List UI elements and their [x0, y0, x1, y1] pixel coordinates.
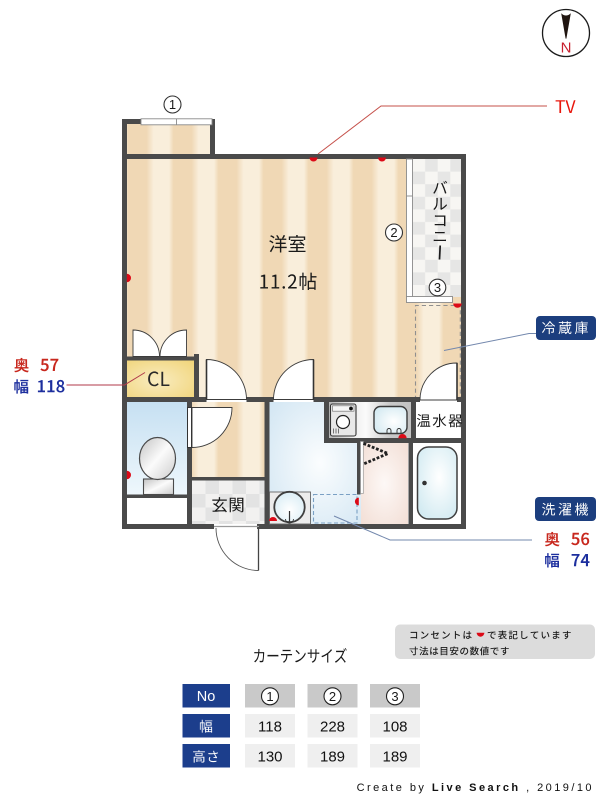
svg-text:2: 2 [390, 225, 397, 240]
svg-text:Create by Live Search , 2019/1: Create by Live Search , 2019/10 [357, 782, 594, 794]
svg-text:189: 189 [320, 749, 345, 766]
svg-text:130: 130 [257, 749, 282, 766]
svg-text:3: 3 [434, 280, 441, 295]
svg-text:189: 189 [382, 749, 407, 766]
svg-text:3: 3 [391, 689, 398, 704]
svg-text:228: 228 [320, 719, 345, 736]
svg-text:1: 1 [169, 97, 176, 112]
svg-text:N: N [561, 40, 572, 57]
svg-text:1: 1 [266, 689, 273, 704]
svg-text:No: No [197, 689, 216, 705]
svg-text:108: 108 [382, 719, 407, 736]
svg-text:118: 118 [258, 719, 282, 736]
svg-text:2: 2 [329, 689, 336, 704]
